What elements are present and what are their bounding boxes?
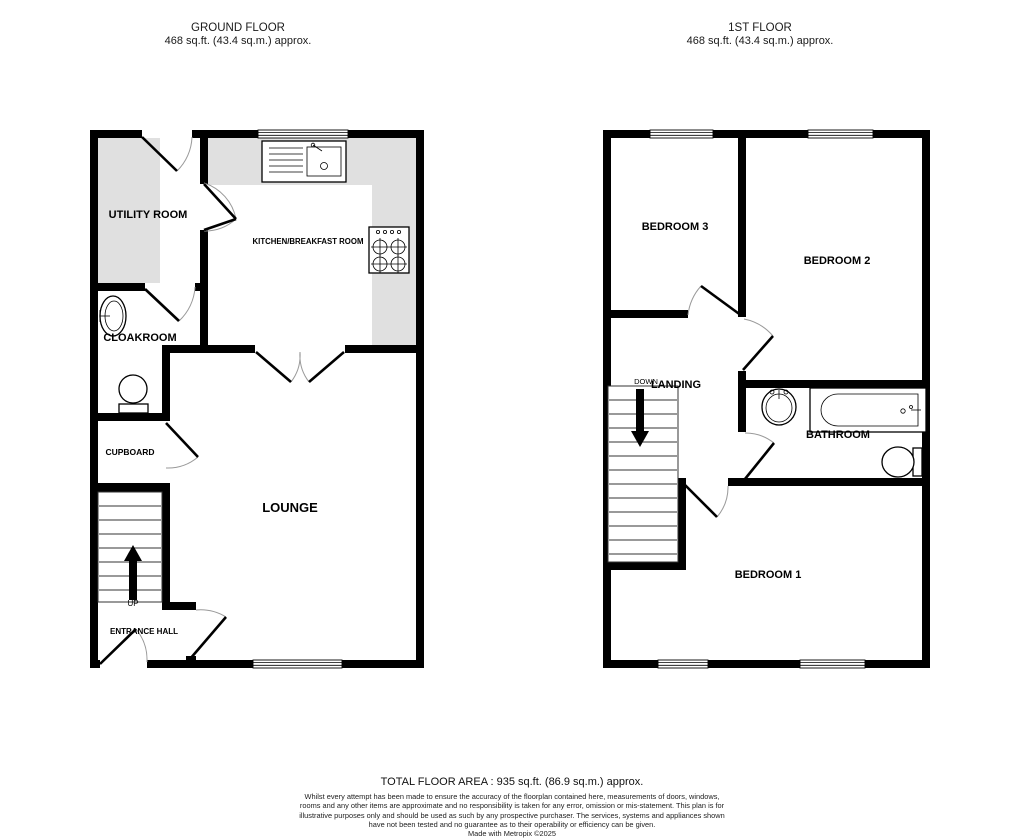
cloakroom-door	[145, 287, 195, 321]
cupboard-door	[166, 423, 198, 468]
ground-floor-title-block: GROUND FLOOR 468 sq.ft. (43.4 sq.m.) app…	[78, 22, 398, 48]
bedroom3-door	[688, 286, 742, 316]
bathroom-toilet-icon	[882, 447, 922, 477]
room-label-cupboard: CUPBOARD	[105, 447, 154, 457]
room-label-kitchen: KITCHEN/BREAKFAST ROOM	[253, 237, 364, 246]
bath-icon	[810, 388, 926, 432]
credit: Made with Metropix ©2025	[0, 829, 1024, 838]
cloakroom-toilet-icon	[119, 375, 148, 413]
hall-lounge-door	[190, 610, 226, 659]
first-floor-plan: BEDROOM 3 BEDROOM 2 DOWN LANDING BATHROO…	[595, 120, 940, 675]
cloakroom-basin-icon	[100, 296, 126, 336]
room-label-bedroom3: BEDROOM 3	[642, 221, 709, 233]
hob-icon	[369, 227, 409, 273]
bedroom2-window	[808, 130, 873, 138]
ground-floor-area: 468 sq.ft. (43.4 sq.m.) approx.	[78, 35, 398, 48]
ground-stairs	[98, 492, 162, 602]
kitchen-sink-icon	[262, 141, 346, 182]
bedroom2-door	[743, 319, 773, 370]
first-floor-area: 468 sq.ft. (43.4 sq.m.) approx.	[600, 35, 920, 48]
bathroom-basin-icon	[762, 389, 796, 425]
room-label-utility: UTILITY ROOM	[109, 209, 188, 221]
bedroom1-door	[682, 482, 728, 517]
utility-kitchen-doors	[204, 183, 236, 231]
room-label-bathroom: BATHROOM	[806, 429, 870, 441]
ground-floor-title: GROUND FLOOR	[78, 22, 398, 35]
footer: TOTAL FLOOR AREA : 935 sq.ft. (86.9 sq.m…	[0, 776, 1024, 838]
first-stairs	[608, 386, 678, 562]
total-floor-area: TOTAL FLOOR AREA : 935 sq.ft. (86.9 sq.m…	[0, 776, 1024, 788]
bathroom-door	[745, 433, 774, 479]
room-label-cloakroom: CLOAKROOM	[103, 332, 176, 344]
disclaimer: Whilst every attempt has been made to en…	[297, 792, 727, 829]
room-label-bedroom2: BEDROOM 2	[804, 255, 871, 267]
room-label-bedroom1: BEDROOM 1	[735, 569, 802, 581]
floorplan-page: { "ground": { "title": "GROUND FLOOR", "…	[0, 0, 1024, 840]
first-floor-title-block: 1ST FLOOR 468 sq.ft. (43.4 sq.m.) approx…	[600, 22, 920, 48]
bedroom1-window-left	[658, 660, 708, 668]
room-label-lounge: LOUNGE	[262, 500, 318, 515]
bedroom1-window-right	[800, 660, 865, 668]
kitchen-window	[258, 130, 348, 138]
room-label-entrance-hall: ENTRANCE HALL	[110, 627, 178, 636]
room-label-landing: LANDING	[651, 379, 701, 391]
ground-floor-plan: UTILITY ROOM KITCHEN/BREAKFAST ROOM CLOA…	[85, 120, 430, 675]
first-floor-title: 1ST FLOOR	[600, 22, 920, 35]
ground-windows	[253, 130, 348, 668]
stairs-up-label: UP	[127, 599, 138, 608]
lounge-window	[253, 660, 342, 668]
bedroom3-window	[650, 130, 713, 138]
kitchen-lounge-doors	[256, 352, 344, 382]
